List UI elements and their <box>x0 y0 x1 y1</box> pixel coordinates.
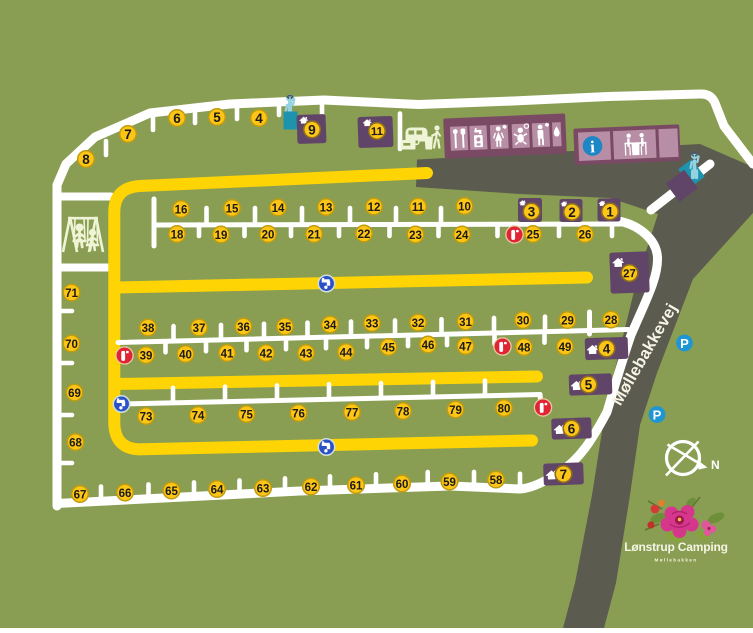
svg-text:1: 1 <box>606 204 614 219</box>
svg-text:4: 4 <box>255 111 263 126</box>
svg-text:44: 44 <box>340 347 353 359</box>
svg-text:80: 80 <box>498 403 511 415</box>
svg-text:11: 11 <box>412 202 425 214</box>
svg-text:45: 45 <box>382 342 395 354</box>
svg-text:32: 32 <box>412 318 425 330</box>
svg-text:7: 7 <box>124 127 132 142</box>
svg-text:18: 18 <box>171 229 184 241</box>
svg-text:43: 43 <box>300 348 313 360</box>
svg-text:71: 71 <box>65 288 78 300</box>
svg-text:47: 47 <box>459 341 472 353</box>
svg-text:46: 46 <box>422 340 435 352</box>
svg-text:28: 28 <box>605 315 618 327</box>
svg-text:40: 40 <box>179 349 192 361</box>
svg-text:21: 21 <box>308 229 321 241</box>
svg-text:11: 11 <box>371 126 384 138</box>
svg-text:67: 67 <box>74 489 87 501</box>
svg-text:27: 27 <box>623 268 636 280</box>
svg-text:75: 75 <box>240 409 253 421</box>
svg-text:41: 41 <box>221 348 234 360</box>
svg-text:31: 31 <box>459 317 472 329</box>
svg-text:77: 77 <box>346 407 359 419</box>
svg-text:P: P <box>680 336 689 351</box>
svg-text:6: 6 <box>173 111 181 126</box>
svg-text:58: 58 <box>490 475 503 487</box>
svg-text:P: P <box>653 407 662 422</box>
svg-text:3: 3 <box>528 204 536 219</box>
svg-text:38: 38 <box>142 323 155 335</box>
svg-text:20: 20 <box>262 229 275 241</box>
svg-text:N: N <box>711 458 720 472</box>
svg-text:2: 2 <box>568 205 576 220</box>
svg-text:66: 66 <box>119 488 132 500</box>
svg-text:62: 62 <box>305 482 318 494</box>
svg-text:9: 9 <box>308 122 316 137</box>
svg-text:48: 48 <box>518 342 531 354</box>
svg-text:14: 14 <box>272 203 285 215</box>
svg-text:16: 16 <box>175 204 188 216</box>
svg-text:63: 63 <box>257 483 270 495</box>
svg-text:35: 35 <box>279 322 292 334</box>
svg-text:49: 49 <box>559 342 572 354</box>
svg-text:34: 34 <box>324 320 337 332</box>
svg-text:10: 10 <box>458 201 471 213</box>
svg-text:78: 78 <box>397 406 410 418</box>
svg-text:29: 29 <box>561 315 574 327</box>
svg-text:65: 65 <box>165 486 178 498</box>
svg-text:25: 25 <box>527 229 540 241</box>
svg-text:5: 5 <box>213 110 221 125</box>
svg-text:42: 42 <box>260 348 273 360</box>
svg-text:61: 61 <box>350 480 363 492</box>
svg-text:73: 73 <box>140 411 153 423</box>
svg-text:15: 15 <box>226 203 239 215</box>
svg-text:60: 60 <box>396 479 409 491</box>
svg-text:7: 7 <box>559 467 567 482</box>
svg-text:68: 68 <box>69 437 82 449</box>
svg-text:8: 8 <box>82 152 90 167</box>
svg-text:74: 74 <box>192 410 205 422</box>
svg-text:6: 6 <box>567 421 576 436</box>
svg-text:26: 26 <box>579 229 592 241</box>
svg-text:12: 12 <box>368 202 381 214</box>
svg-text:23: 23 <box>409 230 422 242</box>
svg-text:33: 33 <box>366 318 379 330</box>
svg-text:76: 76 <box>292 408 305 420</box>
svg-text:39: 39 <box>140 350 153 362</box>
svg-text:4: 4 <box>602 341 611 356</box>
svg-text:13: 13 <box>320 202 333 214</box>
svg-text:59: 59 <box>443 477 456 489</box>
svg-text:70: 70 <box>65 339 78 351</box>
svg-text:24: 24 <box>456 230 469 242</box>
svg-text:79: 79 <box>449 405 462 417</box>
svg-text:69: 69 <box>68 388 81 400</box>
svg-text:Møllebakken: Møllebakken <box>655 558 698 563</box>
svg-text:22: 22 <box>358 229 371 241</box>
svg-text:30: 30 <box>517 315 530 327</box>
svg-text:Lønstrup Camping: Lønstrup Camping <box>624 540 727 554</box>
svg-text:64: 64 <box>211 484 224 496</box>
svg-text:5: 5 <box>584 377 593 392</box>
svg-text:37: 37 <box>193 323 206 335</box>
svg-text:36: 36 <box>237 322 250 334</box>
svg-text:19: 19 <box>215 230 228 242</box>
